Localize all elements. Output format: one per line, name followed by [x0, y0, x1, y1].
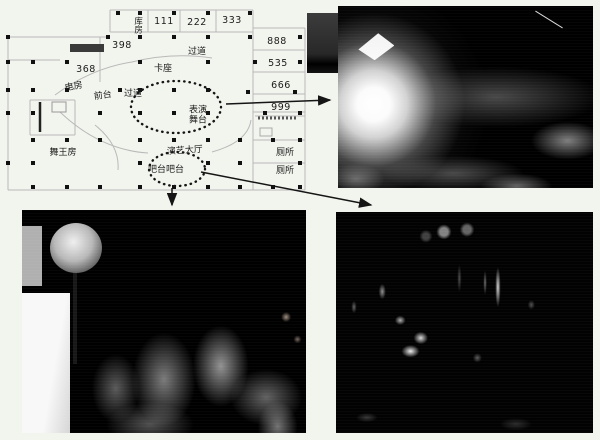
wall-highlight [22, 226, 42, 286]
label-performance-stage: 表演舞台 [186, 106, 210, 127]
label-corridor-mid: 过道 [124, 90, 142, 100]
lamp-pole [73, 270, 77, 364]
label-room-999: 999 [271, 103, 291, 113]
label-room-666: 666 [271, 81, 291, 91]
plan-walls [8, 10, 305, 190]
label-toilet-upper: 厕所 [276, 149, 294, 159]
label-room-222: 222 [187, 18, 207, 28]
label-electric-room: 电房 [64, 82, 83, 95]
label-room-888: 888 [267, 37, 287, 47]
label-room-368: 368 [76, 65, 96, 75]
white-wall [22, 293, 70, 433]
spotlight-flare-shape [358, 33, 394, 60]
scan-dark-artifact [307, 13, 338, 73]
film-scratch-line [535, 10, 563, 28]
label-room-111: 111 [154, 17, 174, 27]
photo-grain-overlay [338, 6, 593, 188]
plan-column-dots [6, 11, 302, 189]
label-room-535: 535 [268, 59, 288, 69]
label-bar-counter: 吧台吧台 [148, 166, 184, 176]
label-dance-king-room: 舞王房 [49, 149, 76, 159]
photo-grain-overlay [336, 212, 593, 433]
label-room-333: 333 [222, 16, 242, 26]
disco-ball [50, 223, 102, 273]
label-card-seats: 卡座 [154, 65, 172, 75]
label-front-desk: 前台 [93, 91, 112, 103]
photo-performance-hall [22, 210, 306, 433]
label-storeroom: 库房 [132, 17, 141, 34]
label-corridor-top: 过道 [188, 48, 206, 58]
label-performance-hall: 演艺大厅 [167, 146, 204, 158]
photo-performance-stage [338, 6, 593, 188]
label-toilet-lower: 厕所 [276, 167, 294, 177]
photo-bar-area [336, 212, 593, 433]
label-room-398: 398 [112, 41, 132, 51]
figure-canvas: 库房 111 222 333 398 过道 888 368 卡座 535 电房 … [0, 0, 600, 440]
